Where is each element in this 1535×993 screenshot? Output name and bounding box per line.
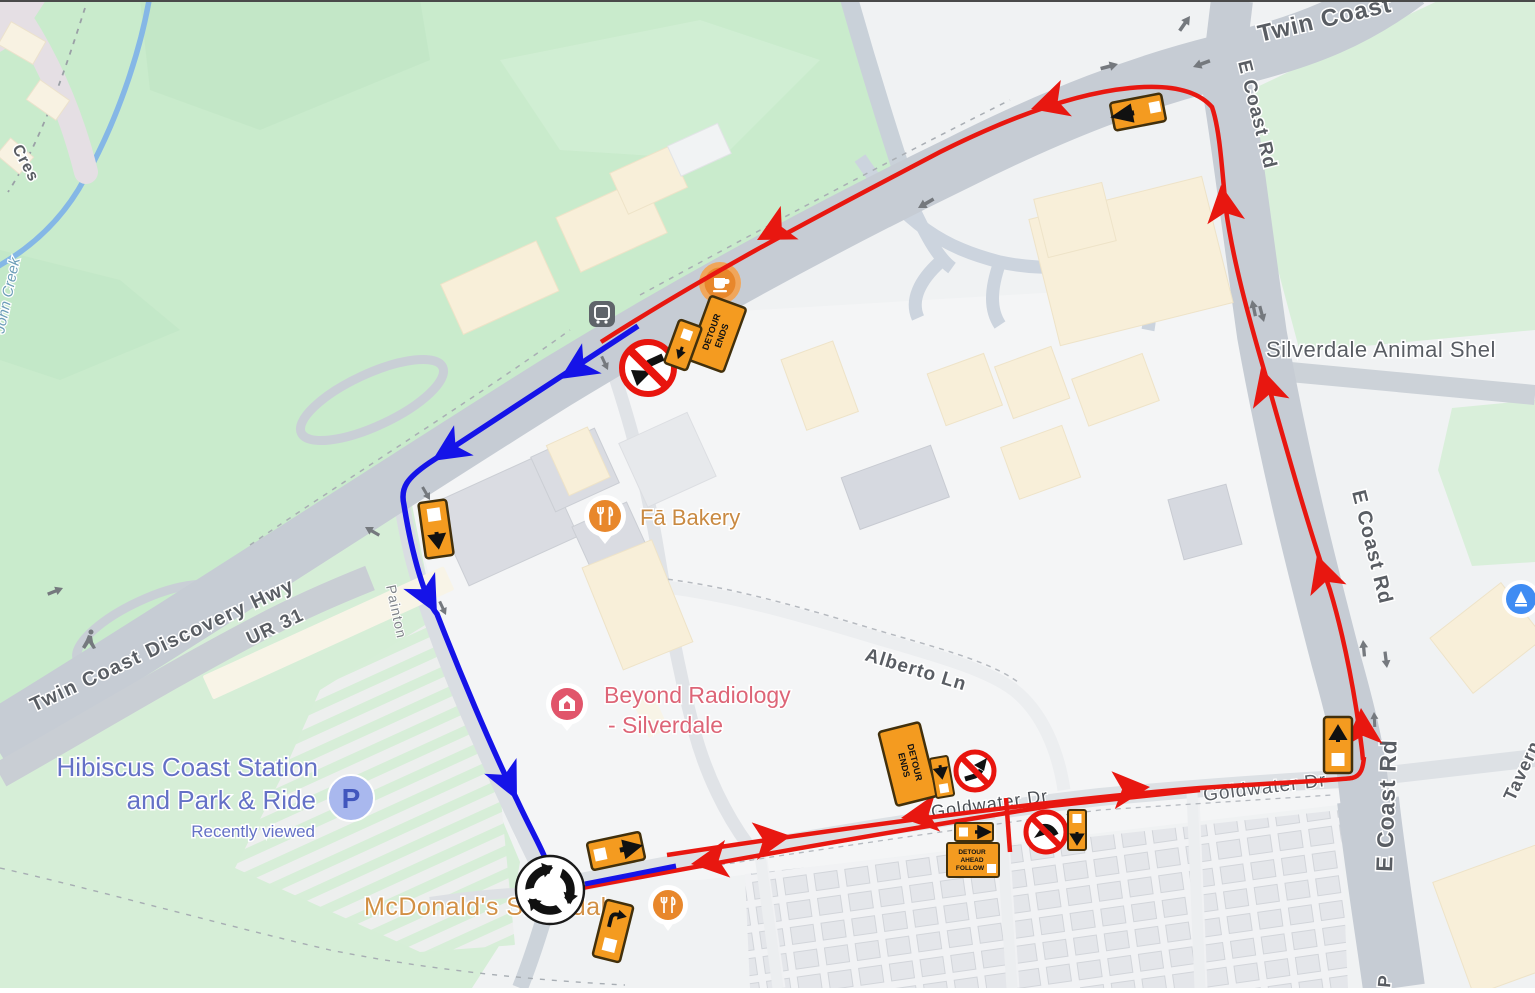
svg-text:Recently viewed: Recently viewed — [191, 822, 315, 841]
svg-text:- Silverdale: - Silverdale — [608, 712, 723, 738]
svg-text:Beyond Radiology: Beyond Radiology — [604, 682, 791, 708]
svg-text:AHEAD: AHEAD — [960, 857, 983, 864]
svg-text:E Coast Rd: E Coast Rd — [1371, 739, 1402, 873]
svg-text:Fā Bakery: Fā Bakery — [640, 505, 740, 530]
svg-text:FOLLOW: FOLLOW — [956, 865, 985, 872]
svg-text:and Park & Ride: and Park & Ride — [127, 785, 316, 815]
svg-text:Silverdale Animal Shel: Silverdale Animal Shel — [1266, 337, 1496, 362]
svg-text:P: P — [1374, 974, 1395, 988]
svg-text:P: P — [342, 783, 361, 814]
svg-text:DETOUR: DETOUR — [958, 849, 986, 856]
svg-text:Hibiscus Coast Station: Hibiscus Coast Station — [56, 752, 318, 782]
